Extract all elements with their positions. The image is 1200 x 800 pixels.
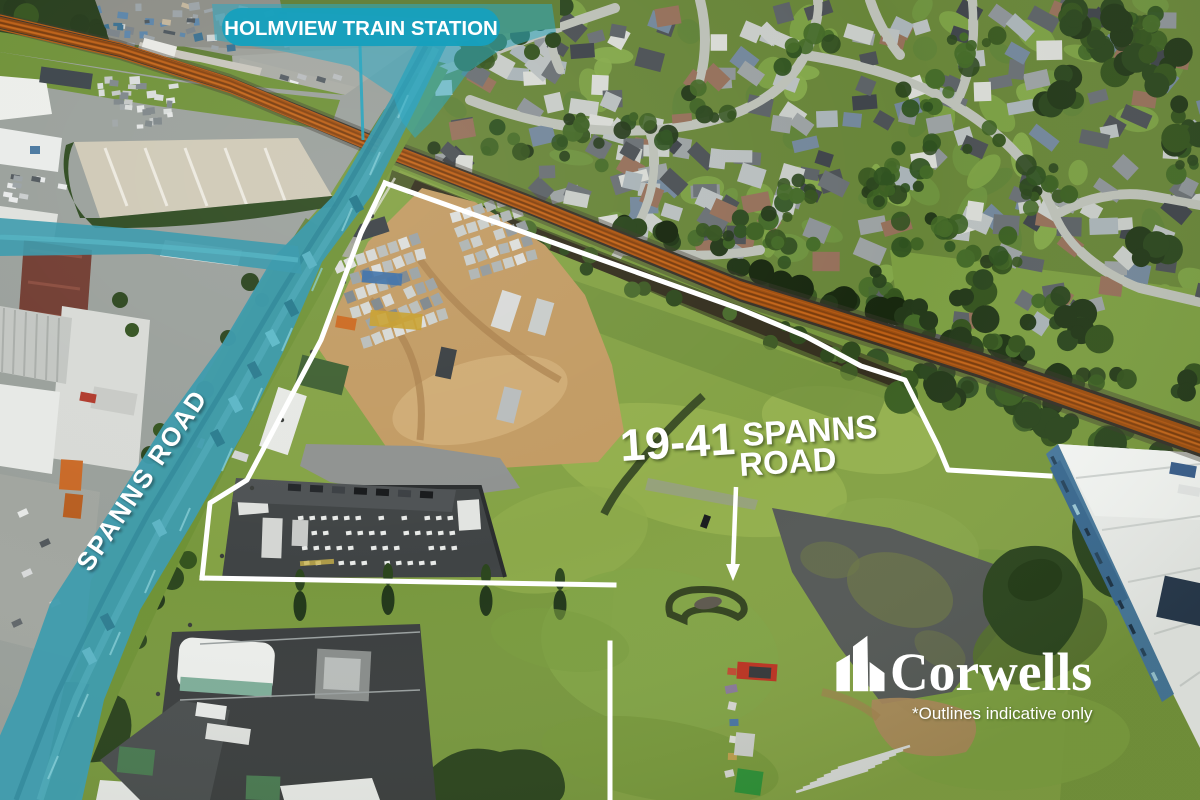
svg-text:Corwells: Corwells xyxy=(890,642,1092,702)
svg-text:*Outlines indicative only: *Outlines indicative only xyxy=(912,704,1093,723)
svg-text:ROAD: ROAD xyxy=(738,440,837,483)
svg-text:19-41: 19-41 xyxy=(618,413,736,471)
svg-text:HOLMVIEW TRAIN STATION: HOLMVIEW TRAIN STATION xyxy=(224,17,498,40)
